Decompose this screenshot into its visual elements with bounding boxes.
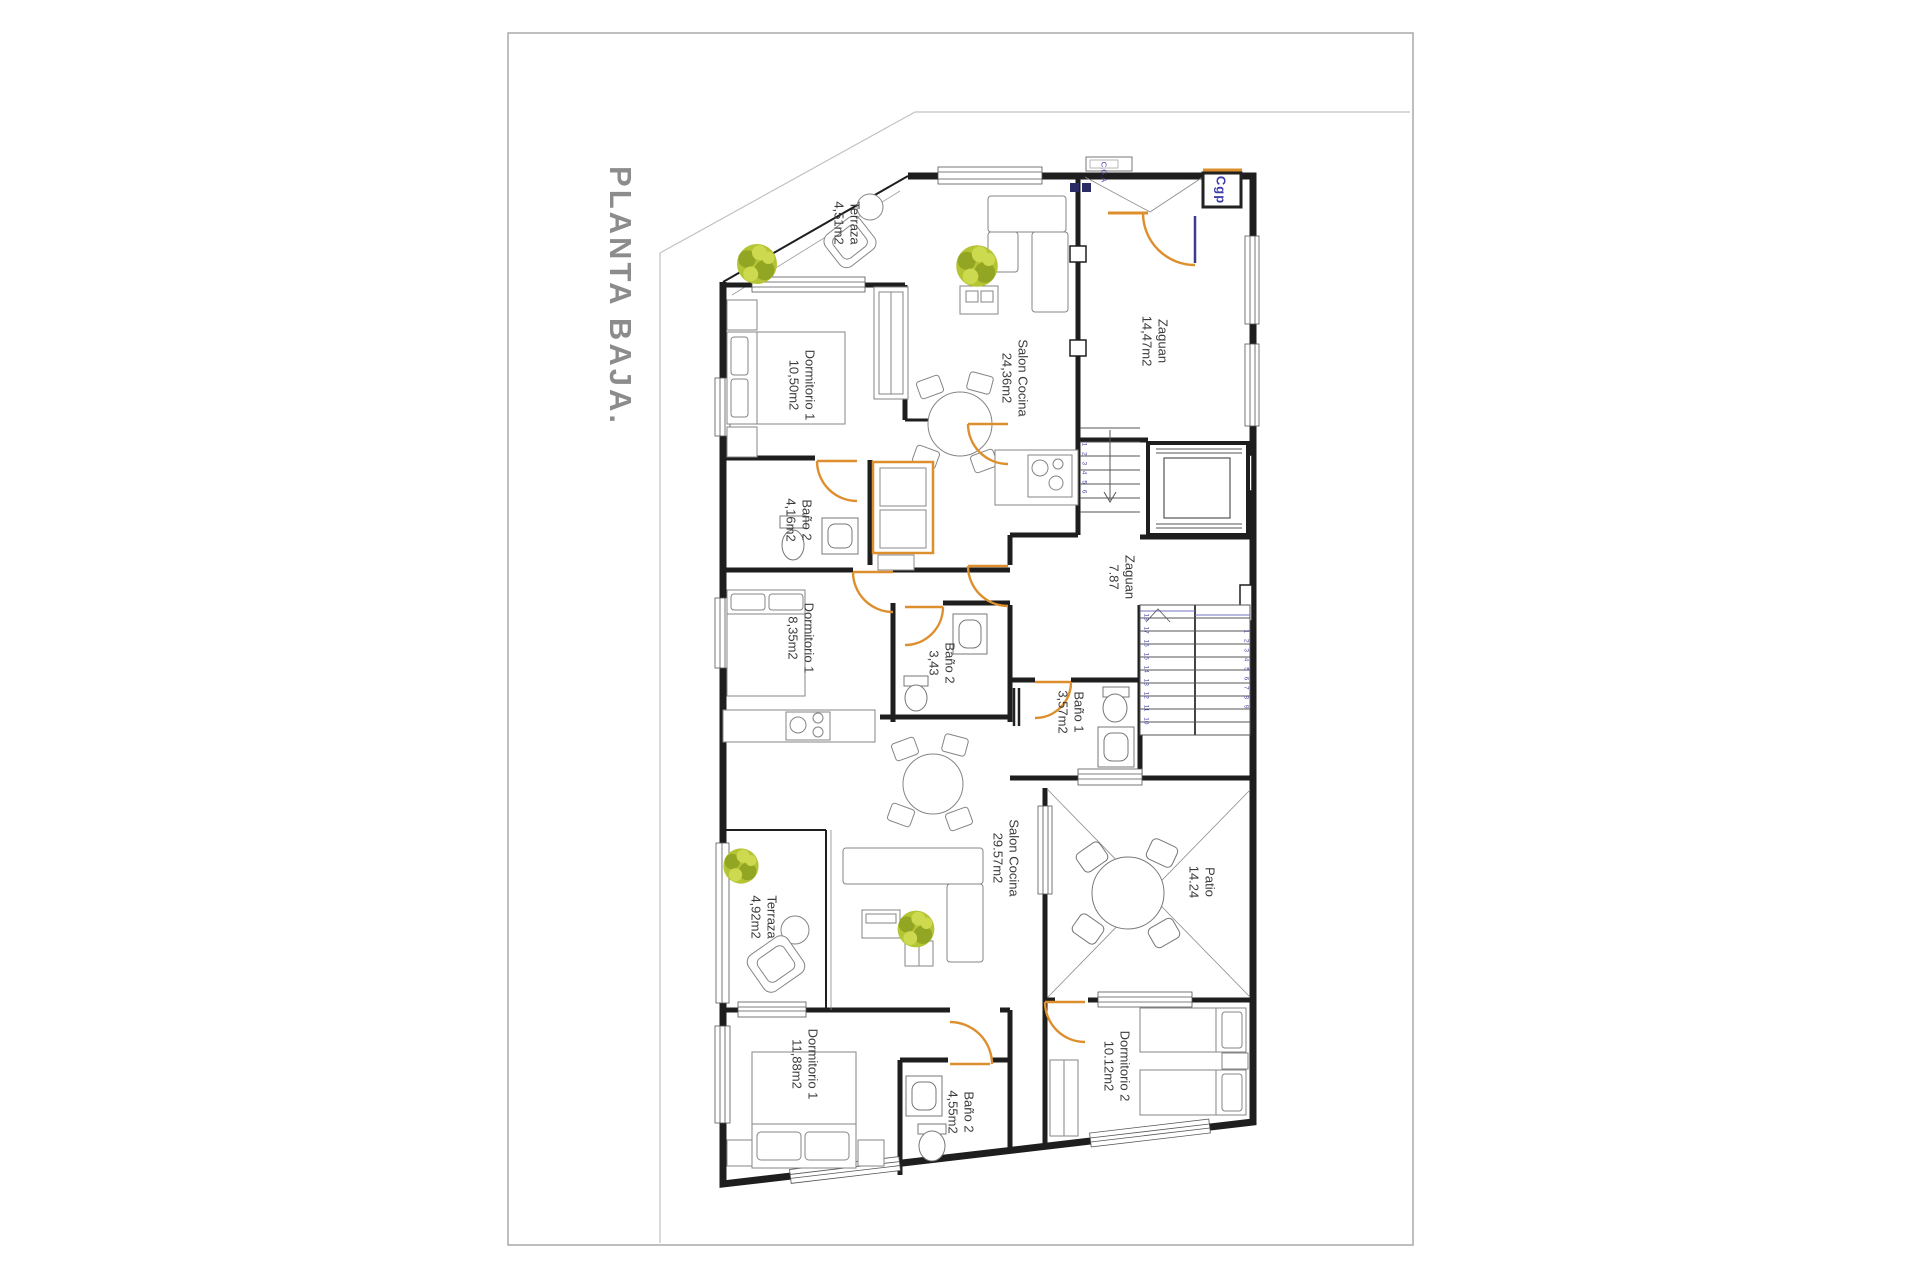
tree-icon	[723, 848, 758, 883]
room-label-terraza-2: Terraza4,92m2	[747, 895, 780, 938]
page-title: PLANTA BAJA.	[602, 166, 638, 426]
room-label-salon-cocina-2: Salon Cocina29.57m2	[989, 819, 1022, 896]
tree-icon	[737, 244, 777, 284]
meter-icon	[1082, 183, 1091, 192]
room-label-bano2-c: Baño 24,55m2	[944, 1090, 977, 1133]
plant-icon	[956, 245, 998, 287]
room-label-salon-cocina-1: Salon Cocina24,36m2	[998, 339, 1031, 416]
room-label-patio: Patio14.24	[1185, 866, 1218, 899]
room-label-dormitorio1-c: Dormitorio 111,88m2	[788, 1029, 821, 1100]
room-label-dormitorio1-a: Dormitorio 110,50m2	[785, 350, 818, 421]
stair-numbers-lower-left: 18 17 16 15 14 13 12 11 10	[1143, 613, 1150, 724]
room-label-bano1: Baño 13,57m2	[1054, 690, 1087, 733]
meter-icon	[1070, 183, 1079, 192]
floor-plan-page: PLANTA BAJA. Terraza4,51m2 Dormitorio 11…	[0, 0, 1920, 1280]
room-label-bano2-b: Baño 23,43	[925, 642, 958, 683]
room-label-dormitorio2: Dormitorio 210.12m2	[1100, 1031, 1133, 1102]
stair-numbers-upper: 1 2 3 4 5 6	[1081, 443, 1088, 494]
room-label-terraza-1: Terraza4,51m2	[830, 201, 863, 244]
cgp-label: Cgp	[1214, 176, 1229, 204]
room-label-dormitorio1-b: Dormitorio 18,35m2	[784, 603, 817, 674]
cga-label: C.G.A	[1100, 162, 1109, 182]
stair-numbers-lower-right: 1 2 3 4 5 6 7 8 9	[1243, 630, 1250, 709]
stairs-lower	[1140, 605, 1250, 735]
room-label-zaguan-2: Zaguan7.87	[1105, 555, 1138, 599]
floor-plan-drawing	[0, 0, 1920, 1280]
plant-icon	[898, 911, 935, 948]
elevator	[1148, 443, 1248, 535]
room-label-bano2-a: Baño 24,16m2	[782, 498, 815, 541]
room-label-zaguan-1: Zaguan14,47m2	[1138, 316, 1171, 367]
wardrobe-highlight	[873, 462, 933, 570]
